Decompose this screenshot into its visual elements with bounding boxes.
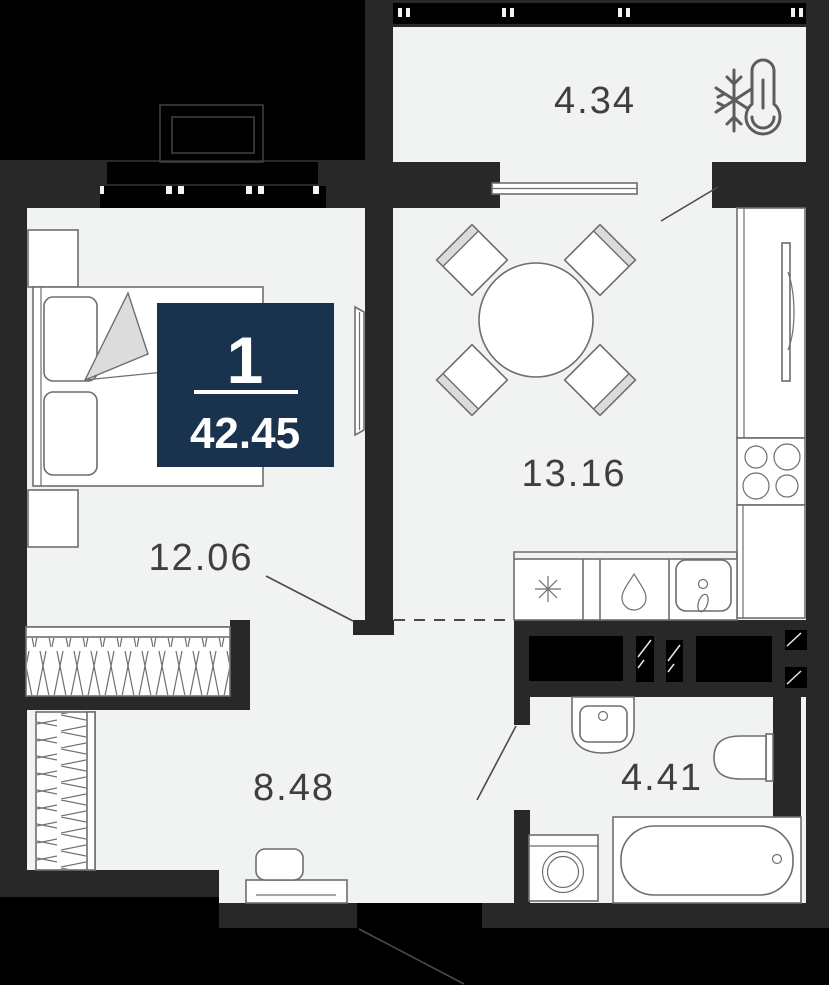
wall-bottom-middle (219, 903, 357, 928)
bathroom-sink (572, 697, 634, 753)
vent-shaft (785, 630, 807, 650)
shoe-cabinet (246, 880, 347, 903)
pillow (44, 297, 97, 381)
badge-total-area: 42.45 (190, 409, 300, 458)
hallway-area-label: 8.48 (253, 767, 335, 809)
closet-hatch (37, 713, 86, 869)
kitchen-counter-bottom (514, 552, 737, 620)
dining-table (479, 263, 593, 377)
vent-shaft (696, 636, 772, 682)
wall-bedroom-pier (230, 620, 250, 710)
nightstand-bottom (28, 490, 78, 547)
bathtub-inner (621, 826, 793, 895)
washer-body (529, 835, 598, 901)
pouf (256, 849, 303, 880)
glazing-band (393, 3, 806, 24)
bedroom-sliding-door (355, 307, 364, 435)
vent-shaft (636, 636, 654, 682)
toilet-bowl (714, 736, 766, 779)
wall-bathroom-left-lower (514, 810, 530, 903)
wall-left (0, 160, 27, 897)
nightstand-top (28, 230, 78, 287)
balcony-glazing (393, 3, 806, 24)
bedroom-window-inner-band (100, 194, 326, 208)
pillow (44, 392, 97, 475)
wall-right (806, 0, 829, 928)
wall-center-foot (353, 620, 394, 635)
fridge-handle (782, 243, 790, 381)
wall-bathroom-left-upper (514, 620, 530, 725)
kitchen-counter-right (737, 208, 805, 618)
fridge (737, 208, 805, 438)
bathtub (613, 817, 801, 903)
bedroom-area-label: 12.06 (148, 537, 253, 579)
toilet-tank (766, 734, 773, 781)
wall-center-vertical (365, 0, 393, 635)
closet-rail (87, 712, 95, 870)
wall-bedroom-bottom (0, 696, 250, 710)
wall-balcony-sill-left (393, 162, 500, 208)
kitchen-sink (676, 560, 731, 613)
sink-basin (676, 560, 731, 611)
counter-corner (737, 505, 805, 618)
tv-stand (107, 162, 318, 184)
bedroom-wardrobe (26, 627, 230, 696)
bedroom-window-segments (104, 186, 326, 194)
area-badge: 1 42.45 (157, 303, 334, 467)
hall-closet (36, 712, 95, 870)
floor-plan: 4.34 13.16 12.06 8.48 4.41 1 42.45 (0, 0, 829, 985)
bathroom-area-label: 4.41 (621, 757, 703, 799)
washing-machine (529, 835, 598, 901)
wall-bottom-left (0, 870, 219, 897)
toilet (714, 734, 773, 781)
badge-rooms-count: 1 (227, 323, 264, 397)
wall-balcony-sill-right (712, 162, 806, 208)
wardrobe-rail (26, 627, 230, 637)
vent-shaft (785, 667, 807, 688)
balcony-area-label: 4.34 (554, 80, 636, 122)
kitchen-living-area-label: 13.16 (521, 453, 626, 495)
outside-bottom (0, 928, 829, 985)
wall-bathroom-pier (773, 697, 801, 817)
wardrobe-hatch (27, 638, 229, 695)
vent-shaft (529, 636, 623, 681)
wall-bottom-right (482, 903, 806, 928)
floor-plan-svg: 4.34 13.16 12.06 8.48 4.41 1 42.45 (0, 0, 829, 985)
